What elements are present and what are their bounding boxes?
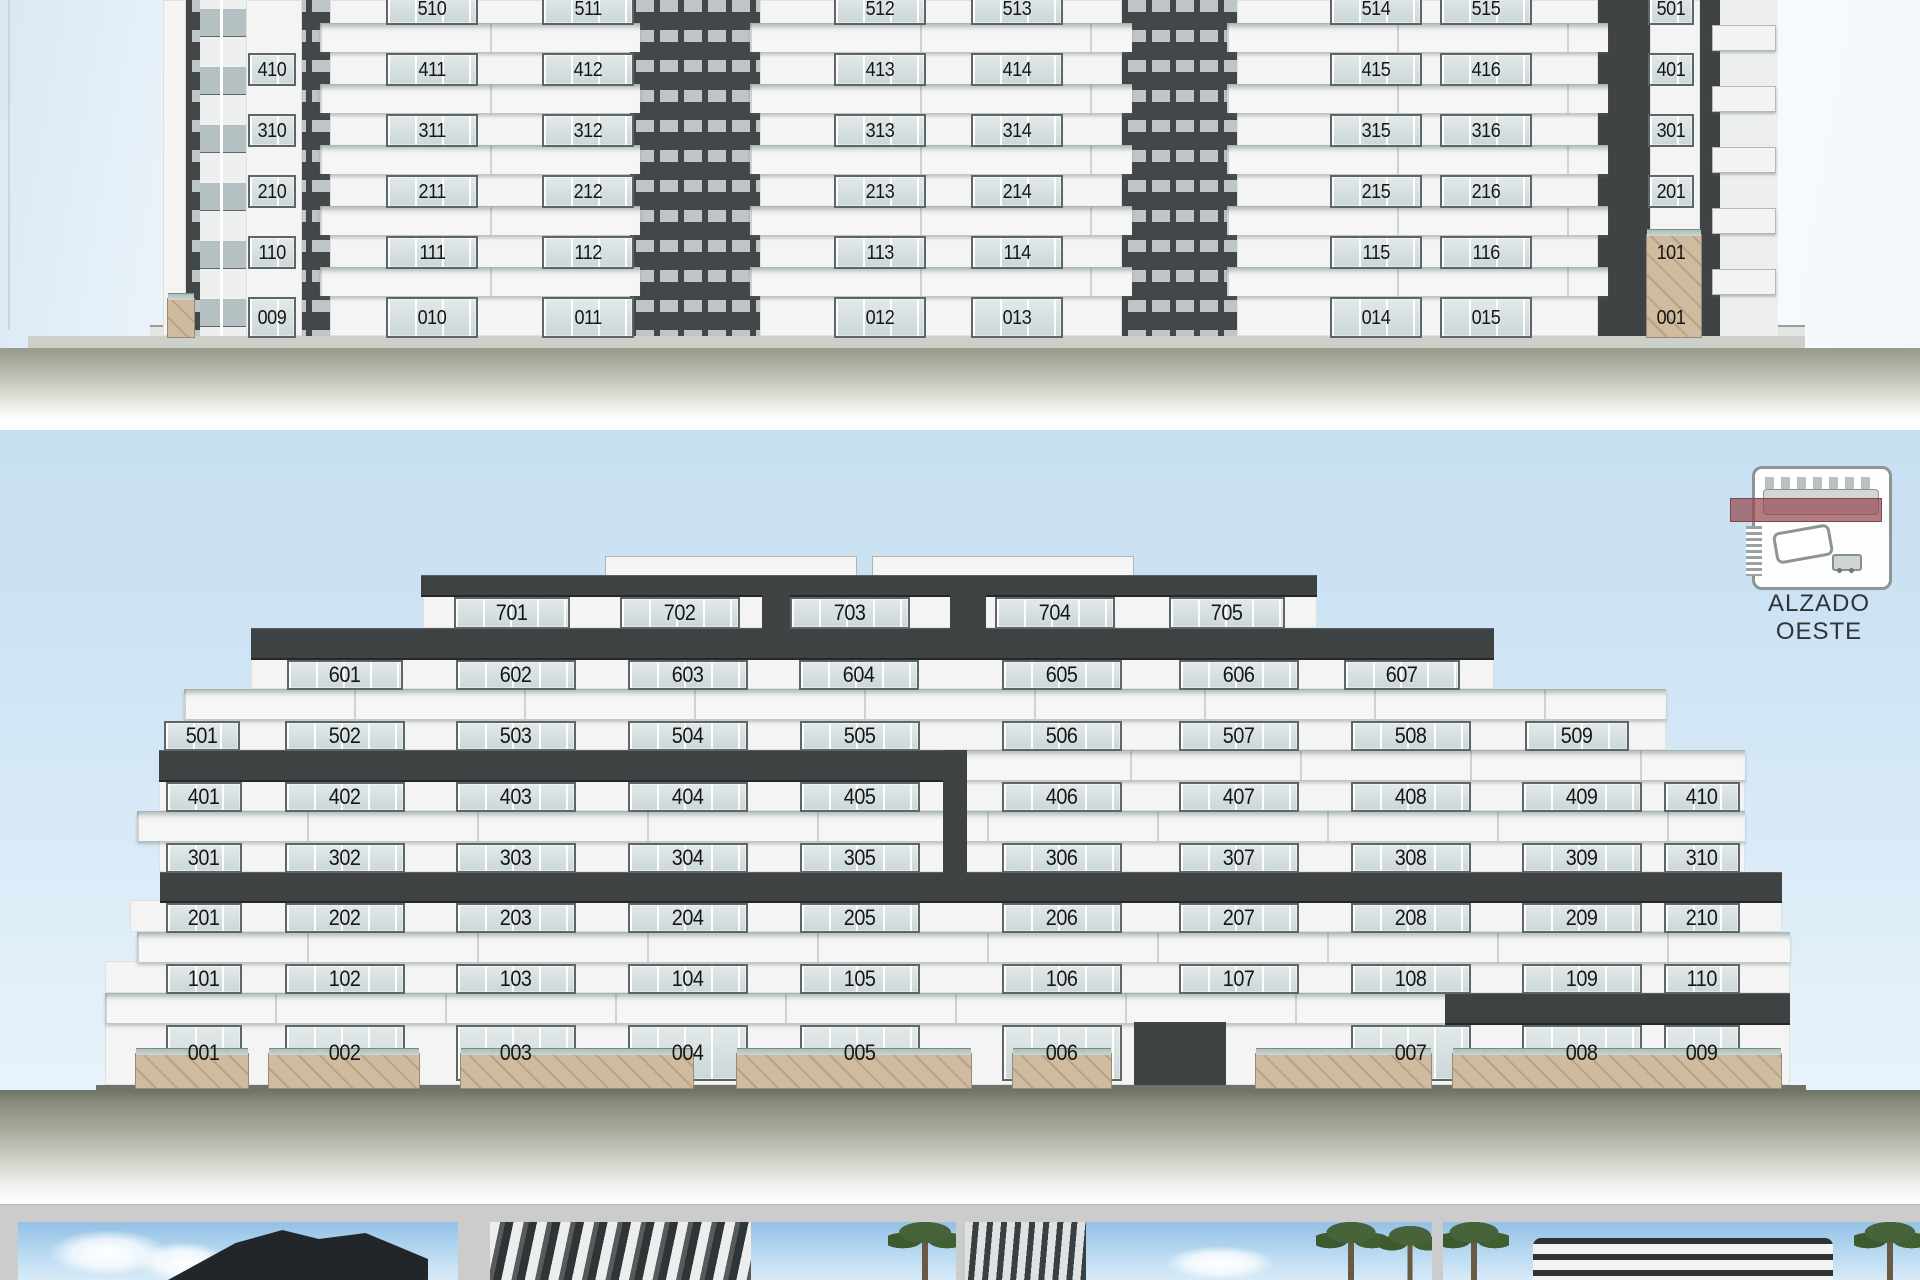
unit-number: 404 (672, 786, 704, 808)
unit-number: 406 (1046, 786, 1078, 808)
unit-window: 303 (456, 843, 576, 873)
unit-window: 210 (1664, 903, 1740, 933)
unit-number: 301 (188, 847, 220, 869)
unit-window: 109 (1522, 964, 1642, 994)
unit-number: 101 (1657, 243, 1686, 263)
unit-number: 411 (418, 60, 445, 80)
unit-window: 205 (800, 903, 920, 933)
unit-window: 110 (1664, 964, 1740, 994)
unit-number: 014 (1362, 308, 1391, 328)
palm-tree (1443, 1222, 1509, 1280)
unit-number: 507 (1223, 725, 1255, 747)
unit-number: 502 (329, 725, 361, 747)
unit-number: 403 (500, 786, 532, 808)
unit-window: 215 (1330, 175, 1422, 208)
unit-number: 508 (1395, 725, 1427, 747)
unit-window: 301 (166, 843, 242, 873)
unit-number: 407 (1223, 786, 1255, 808)
unit-number: 113 (866, 243, 893, 263)
unit-number: 005 (844, 1042, 876, 1064)
unit-number: 501 (1657, 0, 1686, 19)
unit-number: 212 (574, 182, 603, 202)
unit-number: 115 (1362, 243, 1389, 263)
east-balcony-band (750, 267, 1132, 296)
unit-window: 110 (248, 236, 296, 269)
panel-edge-line (8, 0, 10, 330)
unit-window: 513 (971, 0, 1063, 25)
unit-window: 402 (285, 782, 405, 812)
unit-number: 205 (844, 907, 876, 929)
east-dark-core (1122, 0, 1237, 336)
east-dark-core (630, 0, 760, 336)
unit-window: 111 (386, 236, 478, 269)
unit-window: 307 (1179, 843, 1299, 873)
unit-number: 702 (664, 602, 696, 624)
unit-number: 209 (1566, 907, 1598, 929)
unit-window: 115 (1330, 236, 1422, 269)
unit-number: 601 (329, 664, 361, 686)
building-photo-shape (1533, 1238, 1833, 1280)
unit-number: 504 (672, 725, 704, 747)
unit-number: 607 (1386, 664, 1418, 686)
palm-tree (1380, 1226, 1432, 1280)
unit-window: 101 (166, 964, 242, 994)
unit-window: 310 (248, 114, 296, 147)
unit-number: 112 (574, 243, 601, 263)
unit-number: 101 (188, 968, 220, 990)
unit-window: 412 (542, 53, 634, 86)
unit-number: 105 (844, 968, 876, 990)
section-cut-marker (1730, 498, 1882, 522)
unit-number: 012 (866, 308, 895, 328)
unit-window: 112 (542, 236, 634, 269)
unit-number: 703 (834, 602, 866, 624)
unit-number: 211 (418, 182, 445, 202)
east-ground-terrain (0, 348, 1920, 424)
unit-number: 004 (672, 1042, 704, 1064)
unit-window: 206 (1002, 903, 1122, 933)
east-stone-pillar (167, 298, 195, 338)
unit-number: 305 (844, 847, 876, 869)
unit-number: 415 (1362, 60, 1391, 80)
unit-window: 415 (1330, 53, 1422, 86)
unit-window: 204 (628, 903, 748, 933)
unit-window: 308 (1351, 843, 1471, 873)
unit-number: 009 (258, 308, 287, 328)
unit-number: 116 (1472, 243, 1499, 263)
photo-thumbnail-3 (965, 1222, 1432, 1280)
unit-window: 509 (1525, 721, 1629, 751)
car-icon (1832, 554, 1862, 571)
unit-number: 111 (419, 243, 445, 263)
west-dark-pier (762, 594, 790, 657)
unit-number: 603 (672, 664, 704, 686)
unit-window: 010 (386, 297, 478, 338)
unit-window: 013 (971, 297, 1063, 338)
unit-number: 602 (500, 664, 532, 686)
west-balcony-band (137, 811, 1745, 841)
west-dark-fascia-band (159, 750, 960, 782)
west-dark-fascia-band (421, 575, 1317, 597)
unit-number: 401 (188, 786, 220, 808)
palm-tree (888, 1222, 956, 1280)
unit-number: 201 (188, 907, 220, 929)
unit-window: 409 (1522, 782, 1642, 812)
unit-number: 402 (329, 786, 361, 808)
west-dark-pier (950, 594, 986, 657)
unit-window: 212 (542, 175, 634, 208)
balcony-teeth-pattern (1765, 477, 1875, 489)
west-roof-parapet (872, 556, 1134, 576)
unit-window: 504 (628, 721, 748, 751)
east-side-balcony (1712, 86, 1776, 112)
unit-number: 412 (574, 60, 603, 80)
west-balcony-band (184, 689, 1666, 719)
west-dark-fascia-band (160, 872, 1782, 903)
unit-window: 203 (456, 903, 576, 933)
unit-window: 011 (542, 297, 634, 338)
unit-number: 213 (866, 182, 895, 202)
building-photo-shape (965, 1222, 1086, 1280)
unit-number: 102 (329, 968, 361, 990)
east-stair-window-column (200, 0, 246, 336)
east-balcony-band (1227, 206, 1608, 235)
unit-number: 414 (1003, 60, 1032, 80)
unit-number: 002 (329, 1042, 361, 1064)
unit-number: 310 (1686, 847, 1718, 869)
unit-number: 307 (1223, 847, 1255, 869)
unit-window: 314 (971, 114, 1063, 147)
unit-window: 208 (1351, 903, 1471, 933)
unit-number: 007 (1395, 1042, 1427, 1064)
unit-window: 705 (1169, 597, 1285, 629)
unit-number: 704 (1039, 602, 1071, 624)
unit-window: 607 (1344, 660, 1460, 690)
unit-window: 214 (971, 175, 1063, 208)
unit-window: 501 (1648, 0, 1694, 25)
unit-number: 306 (1046, 847, 1078, 869)
unit-window: 401 (1648, 53, 1694, 86)
east-balcony-band (750, 84, 1132, 113)
east-balcony-band (320, 145, 640, 174)
unit-window: 602 (456, 660, 576, 690)
unit-window: 406 (1002, 782, 1122, 812)
unit-window: 305 (800, 843, 920, 873)
unit-number: 107 (1223, 968, 1255, 990)
unit-number: 313 (866, 121, 895, 141)
unit-number: 410 (1686, 786, 1718, 808)
unit-number: 301 (1657, 121, 1686, 141)
unit-number: 202 (329, 907, 361, 929)
unit-number: 413 (866, 60, 895, 80)
unit-window: 413 (834, 53, 926, 86)
unit-number: 408 (1395, 786, 1427, 808)
unit-number: 605 (1046, 664, 1078, 686)
unit-window: 015 (1440, 297, 1532, 338)
unit-number: 416 (1472, 60, 1501, 80)
unit-window: 411 (386, 53, 478, 86)
unit-number: 210 (258, 182, 287, 202)
elevation-title: ALZADO OESTE (1724, 590, 1914, 646)
west-dark-fascia-band (251, 628, 1494, 660)
unit-window: 302 (285, 843, 405, 873)
unit-number: 303 (500, 847, 532, 869)
unit-window: 116 (1440, 236, 1532, 269)
unit-window: 102 (285, 964, 405, 994)
east-balcony-band (750, 145, 1132, 174)
unit-window: 209 (1522, 903, 1642, 933)
unit-window: 309 (1522, 843, 1642, 873)
unit-window: 301 (1648, 114, 1694, 147)
unit-number: 108 (1395, 968, 1427, 990)
unit-number: 501 (186, 725, 218, 747)
unit-number: 006 (1046, 1042, 1078, 1064)
unit-window: 701 (454, 597, 570, 629)
unit-window: 014 (1330, 297, 1422, 338)
east-balcony-band (320, 206, 640, 235)
unit-window: 216 (1440, 175, 1532, 208)
east-balcony-band (1227, 23, 1608, 52)
unit-window: 114 (971, 236, 1063, 269)
unit-window: 403 (456, 782, 576, 812)
photo-thumbnail-4 (1443, 1222, 1920, 1280)
unit-number: 312 (574, 121, 603, 141)
unit-window: 704 (995, 597, 1115, 629)
unit-window: 702 (620, 597, 740, 629)
unit-number: 511 (574, 0, 601, 19)
unit-window: 304 (628, 843, 748, 873)
unit-number: 701 (496, 602, 528, 624)
unit-window: 207 (1179, 903, 1299, 933)
unit-window: 103 (456, 964, 576, 994)
unit-window: 515 (1440, 0, 1532, 25)
unit-window: 405 (800, 782, 920, 812)
unit-window: 410 (1664, 782, 1740, 812)
photo-thumbnail-1 (18, 1222, 458, 1280)
unit-window: 404 (628, 782, 748, 812)
east-side-balcony (1712, 269, 1776, 295)
unit-window: 210 (248, 175, 296, 208)
unit-number: 204 (672, 907, 704, 929)
unit-window: 407 (1179, 782, 1299, 812)
unit-number: 208 (1395, 907, 1427, 929)
unit-number: 315 (1362, 121, 1391, 141)
unit-number: 110 (258, 243, 285, 263)
unit-number: 309 (1566, 847, 1598, 869)
unit-number: 606 (1223, 664, 1255, 686)
unit-window: 009 (248, 297, 296, 338)
east-balcony-band (1227, 267, 1608, 296)
unit-window: 108 (1351, 964, 1471, 994)
unit-window: 104 (628, 964, 748, 994)
unit-window: 512 (834, 0, 926, 25)
east-side-balcony (1712, 208, 1776, 234)
unit-window: 105 (800, 964, 920, 994)
east-balcony-band (1227, 84, 1608, 113)
unit-number: 506 (1046, 725, 1078, 747)
building-photo-shape (490, 1222, 751, 1280)
unit-number: 401 (1657, 60, 1686, 80)
east-side-balcony (1712, 147, 1776, 173)
unit-window: 511 (542, 0, 634, 25)
unit-number: 201 (1657, 182, 1686, 202)
unit-number: 008 (1566, 1042, 1598, 1064)
cloud (1165, 1246, 1275, 1280)
hatch-strip (1746, 526, 1762, 576)
unit-number: 103 (500, 968, 532, 990)
west-balcony-band (137, 932, 1790, 962)
unit-number: 106 (1046, 968, 1078, 990)
west-ground-terrain (0, 1090, 1920, 1202)
unit-number: 302 (329, 847, 361, 869)
east-balcony-band (320, 23, 640, 52)
unit-window: 410 (248, 53, 296, 86)
unit-number: 604 (843, 664, 875, 686)
unit-window: 703 (790, 597, 910, 629)
west-stone-terrace-wall (460, 1053, 694, 1089)
unit-window: 315 (1330, 114, 1422, 147)
unit-window: 601 (287, 660, 403, 690)
east-balcony-band (320, 267, 640, 296)
unit-number: 203 (500, 907, 532, 929)
west-dark-pier (943, 750, 967, 900)
unit-number: 206 (1046, 907, 1078, 929)
unit-number: 510 (418, 0, 447, 19)
unit-window: 604 (799, 660, 919, 690)
unit-number: 514 (1362, 0, 1391, 19)
photo-thumbnail-2 (490, 1222, 956, 1280)
unit-window: 211 (386, 175, 478, 208)
unit-number: 013 (1003, 308, 1032, 328)
unit-number: 110 (1687, 968, 1717, 990)
unit-window: 507 (1179, 721, 1299, 751)
unit-window: 213 (834, 175, 926, 208)
unit-window: 510 (386, 0, 478, 25)
unit-number: 405 (844, 786, 876, 808)
unit-window: 106 (1002, 964, 1122, 994)
unit-number: 513 (1003, 0, 1032, 19)
unit-window: 506 (1002, 721, 1122, 751)
unit-window: 201 (166, 903, 242, 933)
west-ground-dark-core (1134, 1022, 1226, 1085)
unit-window: 603 (628, 660, 748, 690)
site-plan-orientation-icon: ALZADO OESTE (1738, 462, 1902, 622)
unit-number: 109 (1566, 968, 1598, 990)
unit-number: 503 (500, 725, 532, 747)
unit-number: 409 (1566, 786, 1598, 808)
west-stone-terrace-wall (1452, 1053, 1782, 1089)
unit-number: 505 (844, 725, 876, 747)
unit-number: 410 (258, 60, 287, 80)
unit-window: 113 (834, 236, 926, 269)
unit-window: 310 (1664, 843, 1740, 873)
unit-number: 207 (1223, 907, 1255, 929)
unit-number: 015 (1472, 308, 1501, 328)
unit-window: 505 (800, 721, 920, 751)
unit-window: 414 (971, 53, 1063, 86)
east-balcony-band (750, 23, 1132, 52)
unit-window: 306 (1002, 843, 1122, 873)
west-dark-fascia-band (1445, 993, 1790, 1025)
unit-number: 216 (1472, 182, 1501, 202)
east-balcony-band (750, 206, 1132, 235)
west-balcony-band (105, 993, 1445, 1023)
unit-window: 408 (1351, 782, 1471, 812)
unit-number: 308 (1395, 847, 1427, 869)
unit-number: 104 (672, 968, 704, 990)
unit-number: 215 (1362, 182, 1391, 202)
unit-number: 314 (1003, 121, 1032, 141)
unit-number: 114 (1003, 243, 1030, 263)
unit-number: 210 (1686, 907, 1718, 929)
palm-tree (1854, 1222, 1920, 1280)
east-balcony-band (1227, 145, 1608, 174)
unit-window: 503 (456, 721, 576, 751)
unit-number: 310 (258, 121, 287, 141)
unit-window: 313 (834, 114, 926, 147)
unit-window: 316 (1440, 114, 1532, 147)
unit-number: 011 (574, 308, 601, 328)
unit-number: 214 (1003, 182, 1032, 202)
unit-window: 401 (166, 782, 242, 812)
unit-number: 311 (418, 121, 445, 141)
unit-number: 304 (672, 847, 704, 869)
east-number-column (246, 0, 302, 336)
unit-window: 514 (1330, 0, 1422, 25)
unit-number: 010 (418, 308, 447, 328)
unit-number: 705 (1211, 602, 1243, 624)
west-balcony-band (960, 750, 1745, 780)
unit-window: 502 (285, 721, 405, 751)
unit-window: 501 (164, 721, 240, 751)
unit-window: 416 (1440, 53, 1532, 86)
unit-window: 107 (1179, 964, 1299, 994)
palm-tree (1316, 1222, 1386, 1280)
unit-number: 515 (1472, 0, 1501, 19)
unit-number: 003 (500, 1042, 532, 1064)
unit-window: 012 (834, 297, 926, 338)
east-side-balcony (1712, 25, 1776, 51)
unit-number: 001 (188, 1042, 220, 1064)
unit-number: 509 (1561, 725, 1593, 747)
unit-window: 202 (285, 903, 405, 933)
unit-number: 001 (1657, 308, 1686, 328)
unit-window: 201 (1648, 175, 1694, 208)
west-roof-parapet (605, 556, 857, 576)
unit-window: 605 (1002, 660, 1122, 690)
east-edge-column (163, 0, 186, 336)
unit-window: 312 (542, 114, 634, 147)
unit-number: 512 (866, 0, 895, 19)
brochure-page: 5105115125135145155014104114124134144154… (0, 0, 1920, 1280)
unit-number: 316 (1472, 121, 1501, 141)
unit-window: 606 (1179, 660, 1299, 690)
unit-window: 311 (386, 114, 478, 147)
east-balcony-band (320, 84, 640, 113)
unit-number: 009 (1686, 1042, 1718, 1064)
unit-window: 508 (1351, 721, 1471, 751)
